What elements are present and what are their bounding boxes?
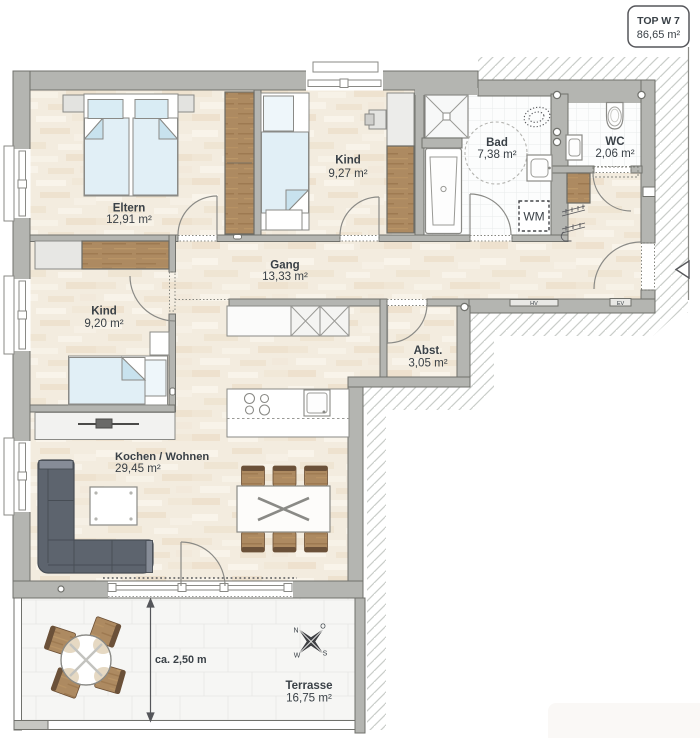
svg-text:TOP W 7: TOP W 7 [637, 15, 680, 27]
svg-text:13,33 m²: 13,33 m² [262, 270, 308, 283]
svg-text:2,06 m²: 2,06 m² [595, 147, 634, 160]
svg-text:O: O [320, 624, 326, 631]
svg-text:S: S [323, 651, 328, 658]
svg-text:9,20 m²: 9,20 m² [84, 317, 123, 330]
svg-text:WM: WM [523, 210, 544, 224]
svg-text:Kind: Kind [91, 306, 117, 318]
svg-text:86,65 m²: 86,65 m² [637, 29, 681, 41]
svg-text:29,45 m²: 29,45 m² [115, 462, 161, 475]
svg-text:Kind: Kind [335, 155, 361, 167]
svg-text:ca. 2,50 m: ca. 2,50 m [155, 654, 207, 666]
svg-text:N: N [293, 628, 298, 635]
svg-text:9,27 m²: 9,27 m² [328, 167, 367, 180]
svg-text:Terrasse: Terrasse [285, 680, 332, 692]
svg-text:Abst.: Abst. [414, 345, 443, 357]
svg-text:W: W [294, 653, 301, 660]
svg-text:3,05 m²: 3,05 m² [408, 357, 447, 370]
svg-text:HV: HV [530, 301, 538, 307]
svg-text:EV: EV [617, 301, 625, 307]
svg-text:16,75 m²: 16,75 m² [286, 692, 332, 705]
svg-text:12,91 m²: 12,91 m² [106, 213, 152, 226]
svg-text:7,38 m²: 7,38 m² [477, 148, 516, 161]
